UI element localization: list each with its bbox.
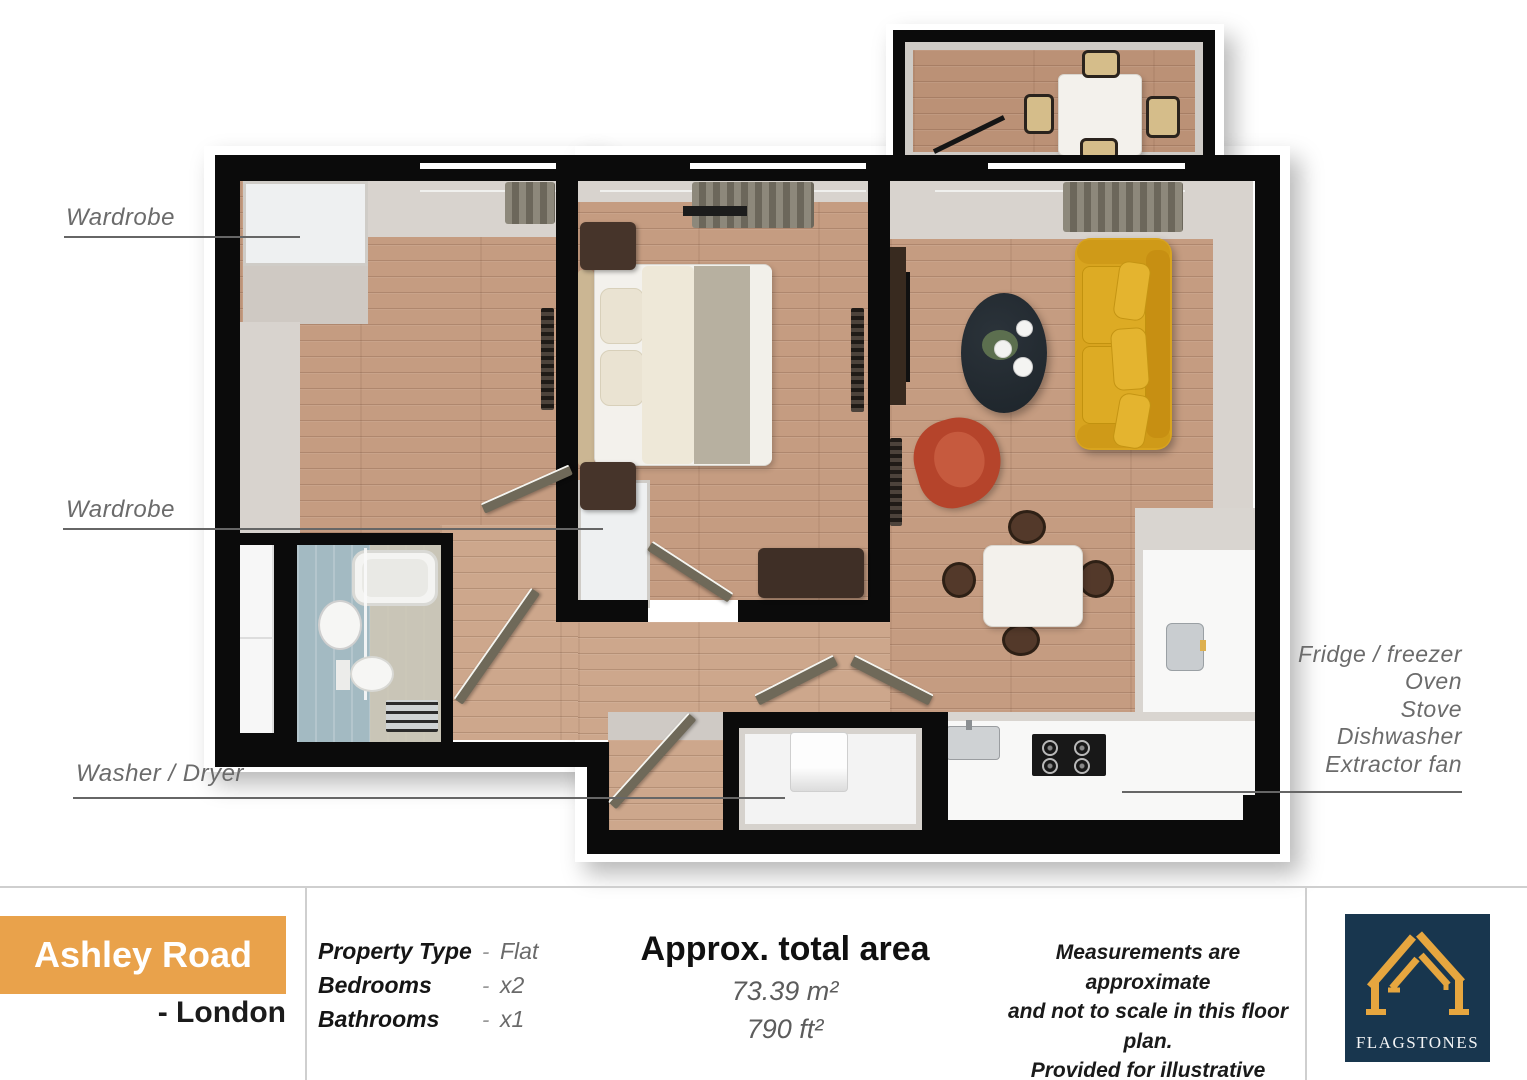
wall: [738, 600, 890, 622]
towel-rack: [386, 700, 438, 732]
nightstand: [580, 462, 636, 510]
detail-row: Property Type - Flat: [318, 938, 588, 972]
radiator: [541, 308, 554, 410]
bed-headboard: [578, 270, 594, 466]
coaster: [1013, 357, 1033, 377]
wardrobe-bedroom2: [243, 181, 368, 266]
vase: [994, 340, 1012, 358]
disclaimer-line: and not to scale in this floor plan.: [992, 997, 1304, 1056]
storage-bench: [758, 548, 864, 598]
toilet-tank: [336, 660, 350, 690]
label-oven: Oven: [1160, 668, 1462, 695]
leader-line: [63, 528, 603, 530]
property-name-banner: Ashley Road: [0, 916, 286, 994]
dining-chair: [1008, 510, 1046, 544]
detail-row: Bathrooms - x1: [318, 1006, 588, 1040]
dining-table: [983, 545, 1083, 627]
balcony-chair: [1082, 50, 1120, 78]
brand-name: FLAGSTONES: [1345, 1033, 1490, 1053]
property-name: Ashley Road: [34, 934, 252, 976]
label-extractor-fan: Extractor fan: [1160, 751, 1462, 778]
window: [690, 163, 866, 169]
footer-divider: [305, 886, 307, 1080]
duvet-edge: [750, 266, 772, 464]
footer-divider: [0, 886, 1527, 888]
kitchen-sink: [946, 726, 1000, 760]
tv: [906, 272, 910, 382]
label-stove: Stove: [1160, 696, 1462, 723]
wall-face: [1213, 239, 1253, 509]
property-location: - London: [0, 996, 286, 1030]
wall-face: [240, 322, 300, 535]
radiator: [890, 438, 902, 526]
label-wardrobe-top: Wardrobe: [66, 204, 175, 232]
floorplan-page: Wardrobe Wardrobe Washer / Dryer Fridge …: [0, 0, 1527, 1080]
alcove-wall: [723, 712, 948, 728]
agency-logo: FLAGSTONES: [1345, 914, 1490, 1062]
wall: [578, 600, 648, 622]
wall: [556, 180, 578, 622]
property-details: Property Type - Flat Bedrooms - x2 Bathr…: [318, 938, 588, 1040]
wall: [868, 180, 890, 622]
detail-sep: -: [482, 1007, 500, 1033]
leader-line: [1122, 791, 1462, 793]
window: [988, 163, 1185, 169]
detail-value: x2: [500, 972, 524, 999]
label-fridge-freezer: Fridge / freezer: [1160, 641, 1462, 668]
stove: [1032, 734, 1106, 776]
dining-chair: [1002, 624, 1040, 656]
label-washer-dryer: Washer / Dryer: [76, 760, 244, 788]
curtains: [1063, 182, 1183, 232]
disclaimer-line: Measurements are approximate: [992, 938, 1304, 997]
curtains: [505, 182, 555, 224]
nightstand: [580, 222, 636, 270]
detail-label: Bedrooms: [318, 972, 482, 999]
balcony-chair: [1024, 94, 1054, 134]
detail-label: Bathrooms: [318, 1006, 482, 1033]
wall: [587, 830, 948, 854]
wall-tv: [683, 206, 747, 216]
wall: [215, 155, 240, 767]
curtains: [692, 182, 814, 228]
detail-value: Flat: [500, 938, 538, 965]
flagstones-roof-icon: [1361, 924, 1473, 1016]
washer-dryer: [790, 732, 848, 792]
toilet: [350, 656, 394, 692]
radiator: [851, 308, 864, 412]
kitchen-appliance-labels: Fridge / freezer Oven Stove Dishwasher E…: [1160, 641, 1462, 778]
leader-line: [64, 236, 300, 238]
dining-chair: [1078, 560, 1114, 598]
tv-unit: [890, 247, 906, 405]
sink-faucet: [966, 720, 972, 730]
detail-sep: -: [482, 939, 500, 965]
blanket: [694, 266, 750, 464]
counter-top-section: [1143, 508, 1255, 550]
footer-divider: [1305, 886, 1307, 1080]
wall: [215, 742, 587, 767]
detail-value: x1: [500, 1006, 524, 1033]
pillow: [600, 288, 644, 344]
leader-line: [73, 797, 785, 799]
dining-chair: [942, 562, 976, 598]
disclaimer: Measurements are approximate and not to …: [992, 938, 1304, 1080]
pillow: [600, 350, 644, 406]
area-ft2: 790 ft²: [585, 1014, 985, 1045]
window: [420, 163, 556, 169]
area-m2: 73.39 m²: [585, 976, 985, 1007]
area-title: Approx. total area: [585, 930, 985, 969]
bathroom-sink: [318, 600, 362, 650]
coaster: [1016, 320, 1033, 337]
cupboard-doors: [240, 545, 274, 733]
label-wardrobe-mid: Wardrobe: [66, 496, 175, 524]
label-dishwasher: Dishwasher: [1160, 723, 1462, 750]
detail-sep: -: [482, 973, 500, 999]
balcony-chair: [1146, 96, 1180, 138]
area-summary: Approx. total area 73.39 m² 790 ft²: [585, 930, 985, 1045]
detail-label: Property Type: [318, 938, 482, 965]
detail-row: Bedrooms - x2: [318, 972, 588, 1006]
disclaimer-line: Provided for illustrative purposes.: [992, 1056, 1304, 1080]
wall-face: [243, 266, 368, 324]
duvet: [642, 266, 694, 464]
wall: [948, 820, 1280, 854]
sofa: [1075, 238, 1172, 450]
